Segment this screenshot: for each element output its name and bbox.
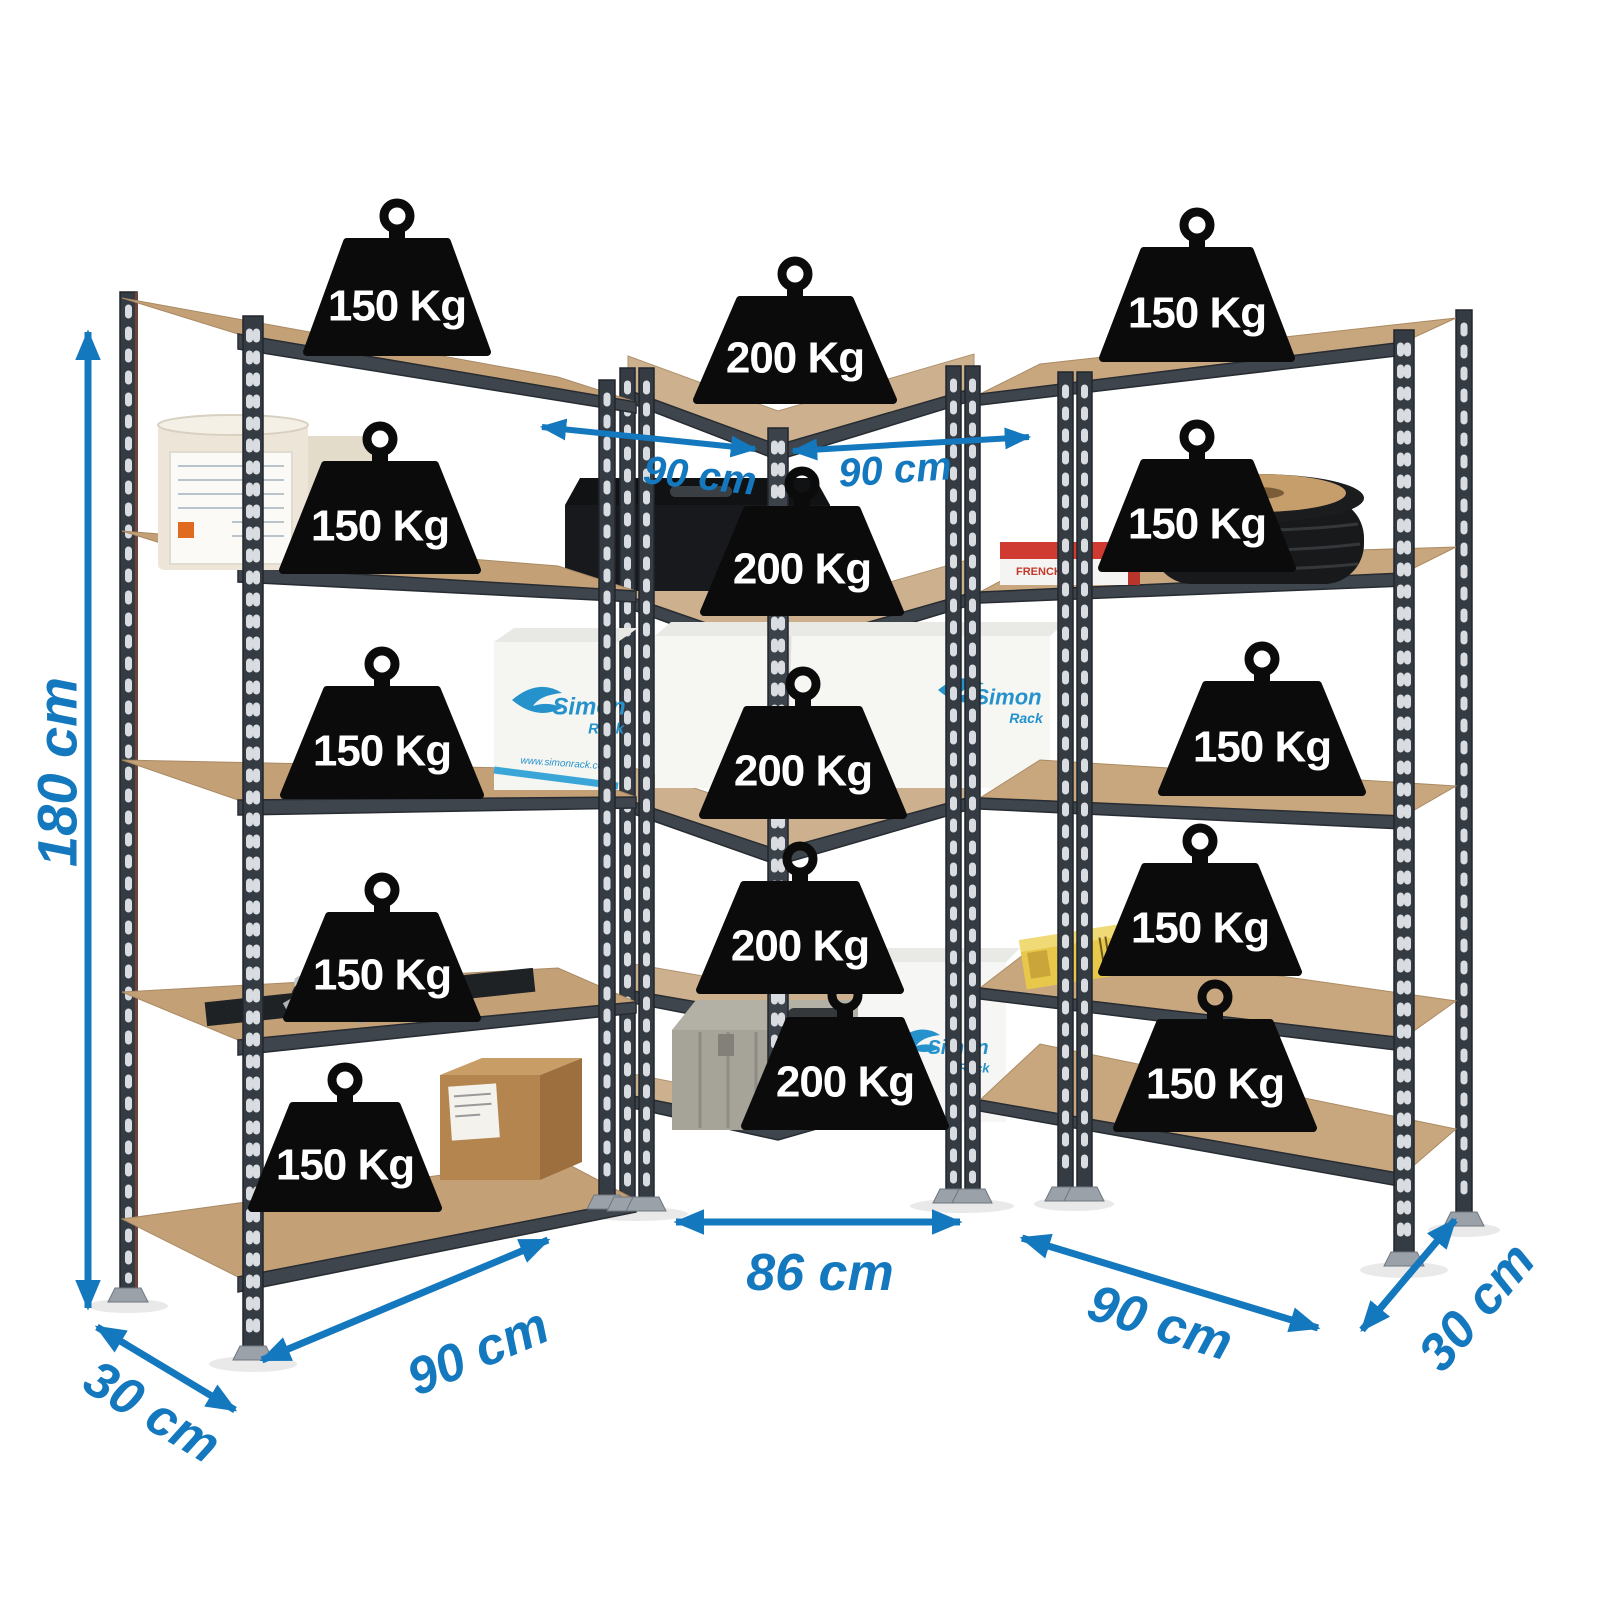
load-label: 150 Kg — [311, 502, 449, 551]
bottom-width-left-label: 90 cm — [399, 1296, 557, 1407]
depth-left-label: 30 cm — [74, 1349, 230, 1475]
left-rear-post — [120, 292, 138, 1292]
right-rear-post — [1456, 310, 1472, 1216]
weight-icon: 150 Kg — [284, 651, 480, 795]
load-label: 150 Kg — [313, 727, 451, 776]
scene: Simon Rack — [0, 0, 1600, 1600]
weight-icon: 150 Kg — [1162, 646, 1362, 792]
shelving-dimension-diagram: Simon Rack — [0, 0, 1600, 1600]
weight-icon: 150 Kg — [287, 877, 477, 1018]
load-label: 150 Kg — [1128, 289, 1266, 338]
height-label: 180 cm — [26, 677, 89, 867]
load-label: 200 Kg — [726, 334, 864, 383]
load-weights: 150 Kg 150 Kg 150 Kg 150 Kg 150 Kg 200 K… — [252, 203, 1362, 1208]
load-label: 150 Kg — [313, 951, 451, 1000]
load-label: 200 Kg — [776, 1058, 914, 1107]
bottom-width-right-label: 90 cm — [1081, 1274, 1239, 1373]
simon-rack-box-left: Simon Rack www.simonrack.com — [494, 628, 638, 790]
bottom-width-middle-label: 86 cm — [746, 1244, 893, 1302]
weight-icon: 150 Kg — [252, 1067, 438, 1208]
weight-icon: 150 Kg — [1102, 424, 1292, 568]
weight-icon: 200 Kg — [697, 261, 893, 400]
box-brand-2: Rack — [1009, 710, 1044, 726]
load-label: 200 Kg — [734, 747, 872, 796]
load-label: 150 Kg — [1128, 500, 1266, 549]
weight-icon: 150 Kg — [307, 203, 487, 352]
load-label: 200 Kg — [731, 922, 869, 971]
weight-icon: 150 Kg — [1102, 828, 1298, 972]
load-label: 150 Kg — [1193, 723, 1331, 772]
top-span-right-label: 90 cm — [837, 444, 953, 496]
load-label: 150 Kg — [328, 282, 466, 331]
load-label: 200 Kg — [733, 545, 871, 594]
hazard-icon — [178, 522, 194, 538]
cardboard-box — [440, 1058, 582, 1180]
box-brand: Simon — [974, 685, 1041, 710]
weight-icon: 150 Kg — [1103, 212, 1291, 358]
load-label: 150 Kg — [1146, 1060, 1284, 1109]
load-label: 150 Kg — [276, 1141, 414, 1190]
load-label: 150 Kg — [1131, 904, 1269, 953]
weight-icon: 200 Kg — [700, 846, 900, 990]
